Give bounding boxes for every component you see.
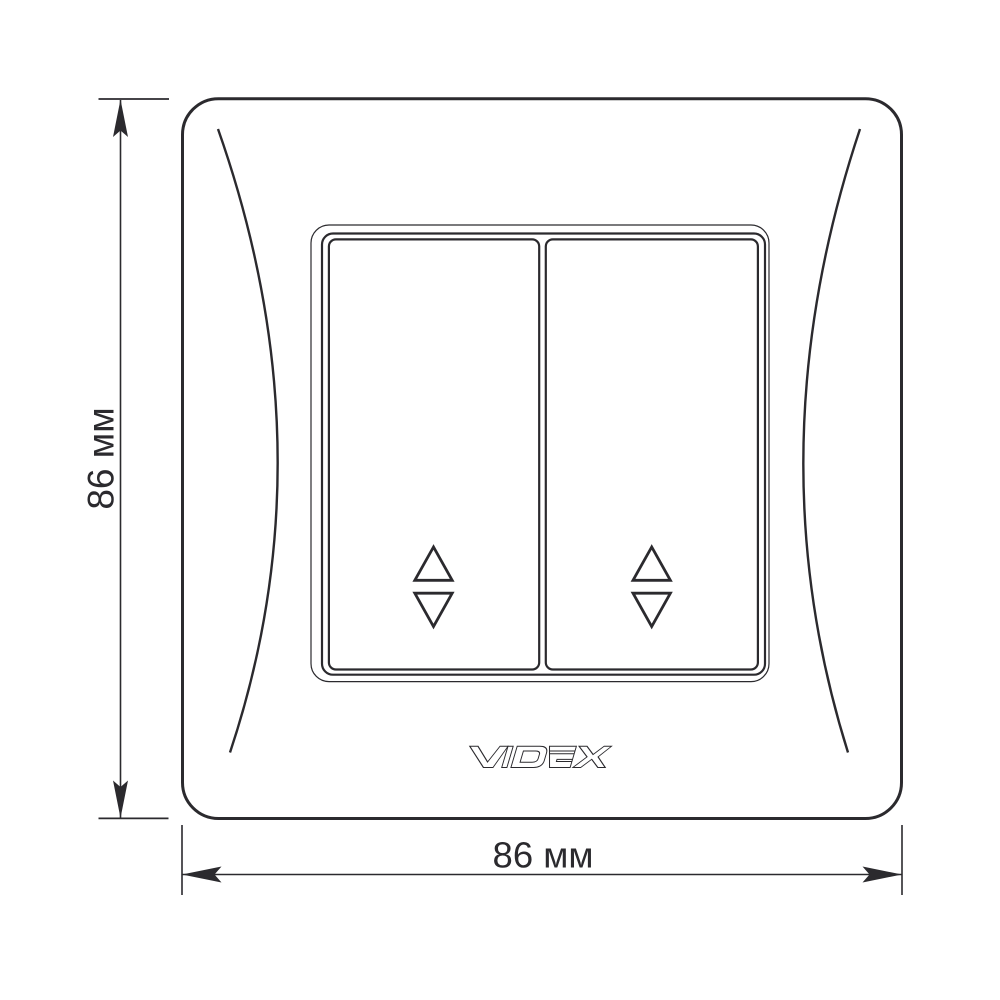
- svg-text:86 мм: 86 мм: [81, 407, 122, 509]
- svg-text:86 мм: 86 мм: [493, 835, 594, 876]
